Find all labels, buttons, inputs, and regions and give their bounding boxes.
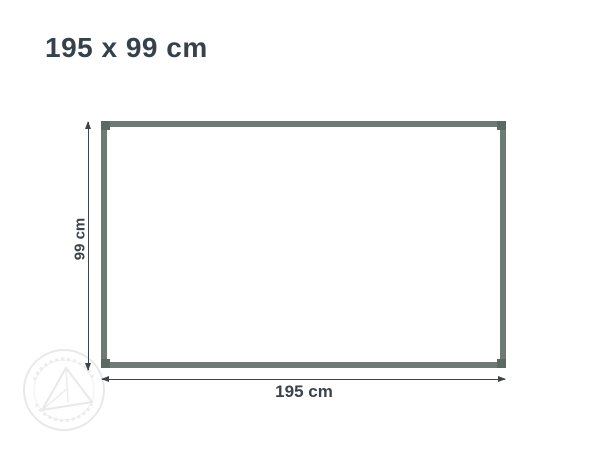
product-frame-outline xyxy=(101,121,506,368)
circular-stamp-watermark-icon xyxy=(22,348,106,432)
arrowhead-left-icon xyxy=(101,376,109,382)
frame-corner-joint xyxy=(101,121,110,130)
height-dimension-label: 99 cm xyxy=(72,218,89,261)
frame-corner-joint xyxy=(497,121,506,130)
arrowhead-up-icon xyxy=(85,121,91,129)
dimension-diagram-page: 195 x 99 cm 99 cm 195 cm xyxy=(0,0,607,455)
width-dimension-label: 195 cm xyxy=(275,382,333,402)
page-title: 195 x 99 cm xyxy=(45,32,208,64)
dimension-line xyxy=(102,379,505,380)
arrowhead-down-icon xyxy=(85,363,91,371)
arrowhead-right-icon xyxy=(498,376,506,382)
frame-corner-joint xyxy=(497,359,506,368)
frame-corner-joint xyxy=(101,359,110,368)
